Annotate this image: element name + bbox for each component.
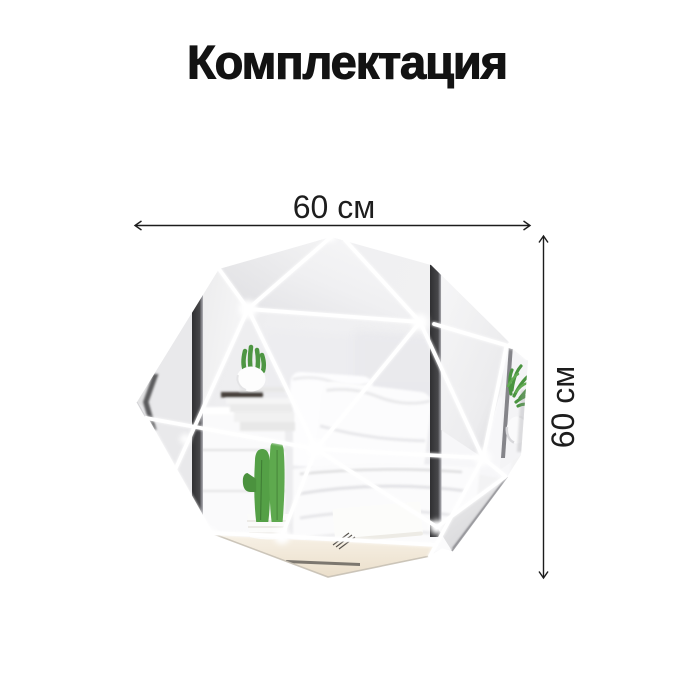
svg-text:60 см: 60 см (545, 366, 581, 448)
svg-text:60 см: 60 см (293, 189, 375, 225)
svg-text:Комплектация: Комплектация (187, 36, 507, 89)
